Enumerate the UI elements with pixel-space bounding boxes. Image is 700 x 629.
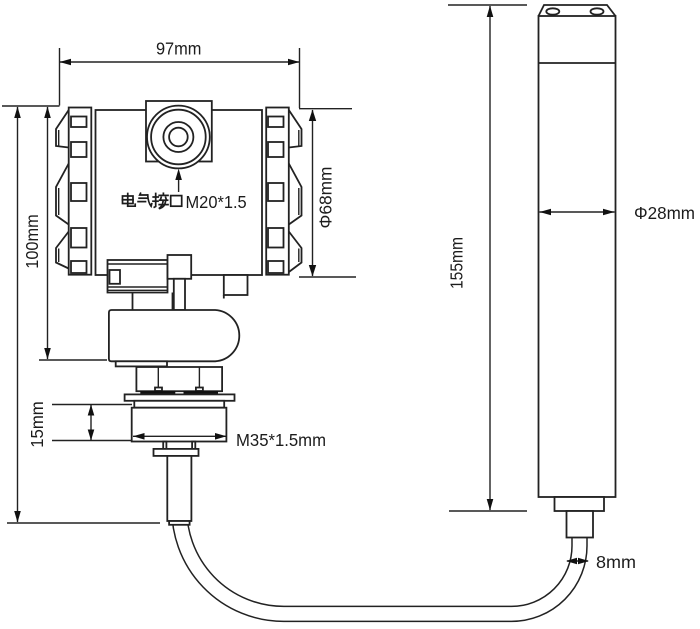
- svg-text:Φ28mm: Φ28mm: [634, 203, 695, 223]
- svg-text:15mm: 15mm: [27, 401, 47, 448]
- svg-text:155mm: 155mm: [447, 237, 467, 289]
- svg-text:M35*1.5mm: M35*1.5mm: [236, 430, 326, 450]
- svg-text:8mm: 8mm: [596, 552, 636, 572]
- svg-text:100mm: 100mm: [22, 214, 42, 268]
- svg-text:Φ68mm: Φ68mm: [316, 167, 336, 229]
- svg-text:M20*1.5: M20*1.5: [186, 192, 247, 212]
- svg-text:97mm: 97mm: [156, 39, 202, 59]
